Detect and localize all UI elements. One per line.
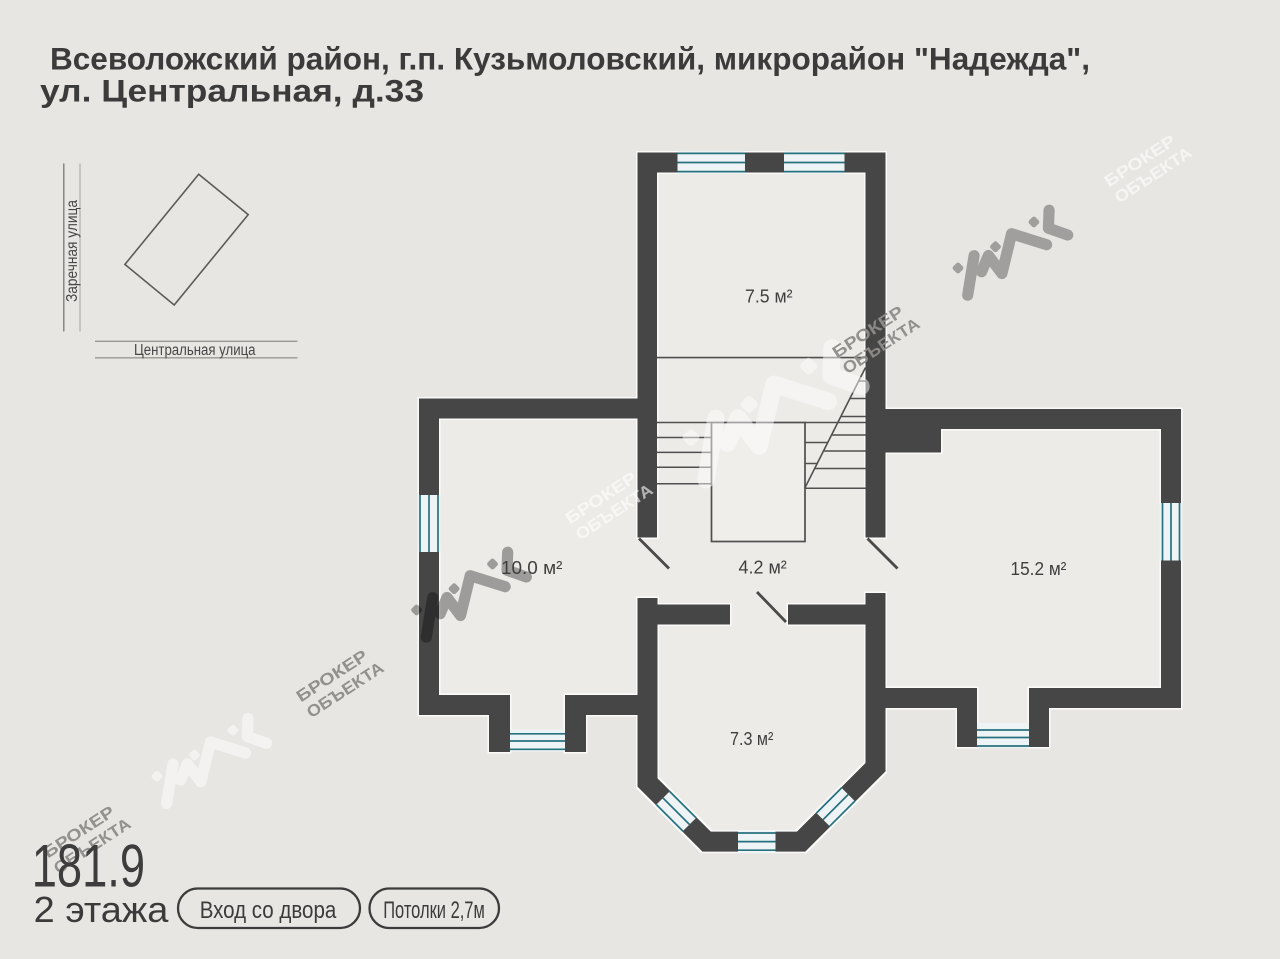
svg-text:Потолки 2,7м: Потолки 2,7м <box>383 897 485 924</box>
svg-text:7.3 м²: 7.3 м² <box>730 728 773 749</box>
svg-text:7.5 м²: 7.5 м² <box>745 286 793 307</box>
svg-text:4.2 м²: 4.2 м² <box>739 556 787 577</box>
svg-text:2 этажа: 2 этажа <box>34 889 170 930</box>
svg-text:Всеволожский район, г.п. Кузьм: Всеволожский район, г.п. Кузьмоловский, … <box>50 41 1090 77</box>
svg-text:10.0 м²: 10.0 м² <box>501 557 562 578</box>
svg-text:Заречная улица: Заречная улица <box>64 200 81 302</box>
svg-text:Центральная улица: Центральная улица <box>134 342 256 359</box>
svg-text:Вход со двора: Вход со двора <box>200 897 337 924</box>
svg-text:15.2 м²: 15.2 м² <box>1011 558 1067 579</box>
svg-text:ул. Центральная, д.33: ул. Центральная, д.33 <box>40 72 424 108</box>
